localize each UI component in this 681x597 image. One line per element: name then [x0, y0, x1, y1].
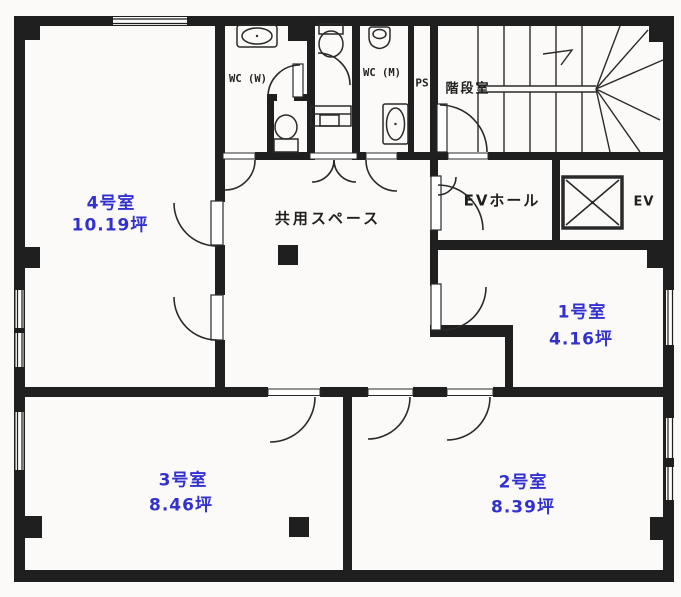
toilet-women [274, 115, 298, 152]
floor-plan-drawing [0, 0, 681, 597]
common-space-label: 共用スペース [275, 212, 381, 227]
room2-name-label: 2号室 [499, 475, 548, 492]
urinal [369, 27, 390, 49]
sink-basin [237, 25, 277, 47]
room4-area-label: 10.19坪 [72, 218, 149, 235]
staircase [478, 26, 663, 152]
room1-name-label: 1号室 [558, 305, 607, 322]
pipe-shaft-label: PS [415, 78, 428, 89]
toilet-middle [319, 24, 343, 57]
door-thresholds [223, 153, 493, 396]
stair-direction-arrow [543, 50, 572, 65]
vanity-counter [311, 106, 351, 126]
wc-women-label: WC (W) [229, 74, 267, 85]
room2-area-label: 8.39坪 [491, 500, 555, 517]
room1-area-label: 4.16坪 [549, 332, 613, 349]
ev-hall-label: EVホール [464, 194, 541, 209]
walls [14, 16, 674, 582]
tub [383, 104, 408, 144]
elevator-shaft [563, 177, 622, 228]
room3-name-label: 3号室 [159, 473, 208, 490]
floor-plan: 4号室 10.19坪 1号室 4.16坪 2号室 8.39坪 3号室 8.46坪… [0, 0, 681, 597]
room3-area-label: 8.46坪 [149, 498, 213, 515]
stairwell-label: 階段室 [445, 83, 490, 96]
room4-name-label: 4号室 [87, 196, 136, 213]
fixtures [237, 24, 408, 152]
wc-men-label: WC (M) [363, 68, 401, 79]
elevator-label: EV [634, 196, 655, 209]
